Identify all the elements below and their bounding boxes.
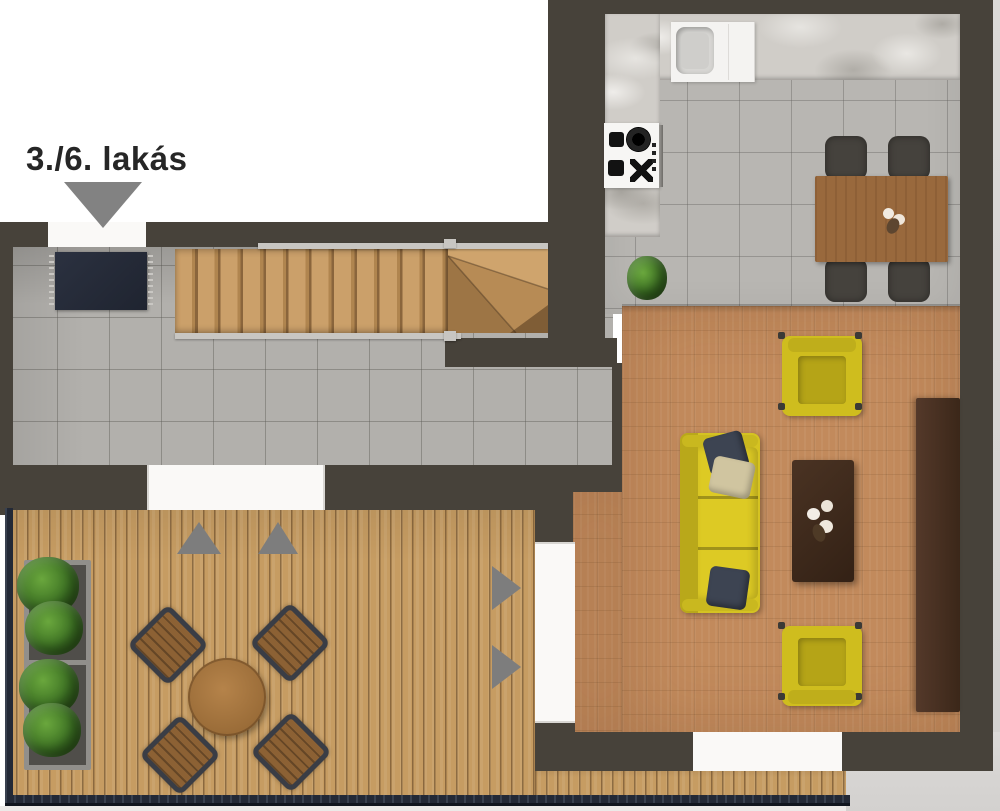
terrace-railing-left — [5, 508, 13, 806]
deck-arrow-right-icon — [492, 566, 521, 610]
wall-kitchen-top — [552, 0, 993, 14]
plan-label: 3./6. lakás — [26, 140, 187, 178]
planter-box-upper — [24, 560, 91, 667]
dining-chair-bottom-right — [888, 258, 930, 302]
sink-basin-inner — [681, 33, 709, 69]
floorplan-canvas: 3./6. lakás — [0, 0, 1000, 811]
armchair-top — [782, 336, 862, 416]
deck-arrow-right-icon — [492, 645, 521, 689]
dining-table-flowers — [879, 206, 909, 238]
living-room-floor-extension — [573, 490, 622, 732]
staircase-newel-bottom — [444, 331, 456, 341]
armchair-seat — [798, 638, 846, 686]
planter-plant — [25, 601, 83, 655]
deck-arrow-up-icon — [258, 522, 298, 554]
staircase-rail-bottom — [175, 333, 461, 339]
armchair-legs — [778, 332, 785, 339]
dining-chair-top-left — [825, 136, 867, 180]
wall-deck-door-upper — [535, 465, 573, 542]
armchair-backrest — [788, 690, 856, 704]
stove-handle — [659, 125, 663, 187]
outside-area-right — [993, 0, 1000, 811]
staircase-treads — [175, 249, 448, 333]
staircase-winder — [448, 249, 548, 333]
dining-chair-top-right — [888, 136, 930, 180]
terrace-railing-bottom — [5, 795, 850, 806]
wall-right — [960, 0, 993, 735]
stove-knobs — [652, 143, 656, 175]
deck-arrow-up-icon — [177, 522, 221, 554]
wall-deck-door-lower — [535, 723, 575, 771]
doormat-fringe-left — [49, 255, 54, 307]
entrance-arrow-icon — [64, 182, 142, 228]
armchair-legs — [778, 622, 785, 629]
sink-divider-line — [728, 24, 729, 80]
flower-petal — [807, 508, 820, 520]
armchair-backrest — [788, 338, 856, 352]
wall-living-bottom-left — [573, 732, 693, 771]
outside-edge-strip — [0, 806, 846, 811]
armchair-bottom — [782, 626, 862, 706]
coffee-table-flowers — [805, 498, 841, 546]
stove-burner-cross-icon — [630, 159, 653, 182]
stove-burner-small2-icon — [608, 160, 624, 176]
staircase-rail-top — [258, 243, 548, 249]
tv-sideboard — [916, 398, 960, 712]
wall-under-winder — [445, 338, 617, 367]
sofa-backrest — [680, 433, 698, 613]
terrace-table — [188, 658, 266, 736]
doormat-fringe-right — [148, 255, 153, 307]
door-living-to-deck — [535, 542, 575, 723]
wall-corridor-jamb — [612, 363, 622, 467]
sofa-pillow-dark-bottom — [705, 565, 750, 610]
kitchen-plant — [627, 256, 667, 300]
floor-transition-shadow — [622, 304, 960, 313]
door-living-bottom — [693, 732, 842, 771]
wall-living-step — [573, 465, 622, 492]
armchair-seat — [798, 356, 846, 404]
door-hall-to-terrace — [147, 465, 325, 510]
flower-petal — [821, 500, 833, 512]
planter-plant — [23, 703, 81, 757]
stove-burner-small-icon — [609, 132, 624, 147]
planter-box-lower — [24, 660, 91, 770]
staircase-newel-top — [444, 239, 456, 248]
stove-burner-large-icon — [626, 127, 651, 152]
dining-chair-bottom-left — [825, 258, 867, 302]
wall-living-bottom-right — [842, 732, 993, 771]
doormat — [55, 252, 147, 310]
wall-kitchen-left — [548, 0, 605, 367]
